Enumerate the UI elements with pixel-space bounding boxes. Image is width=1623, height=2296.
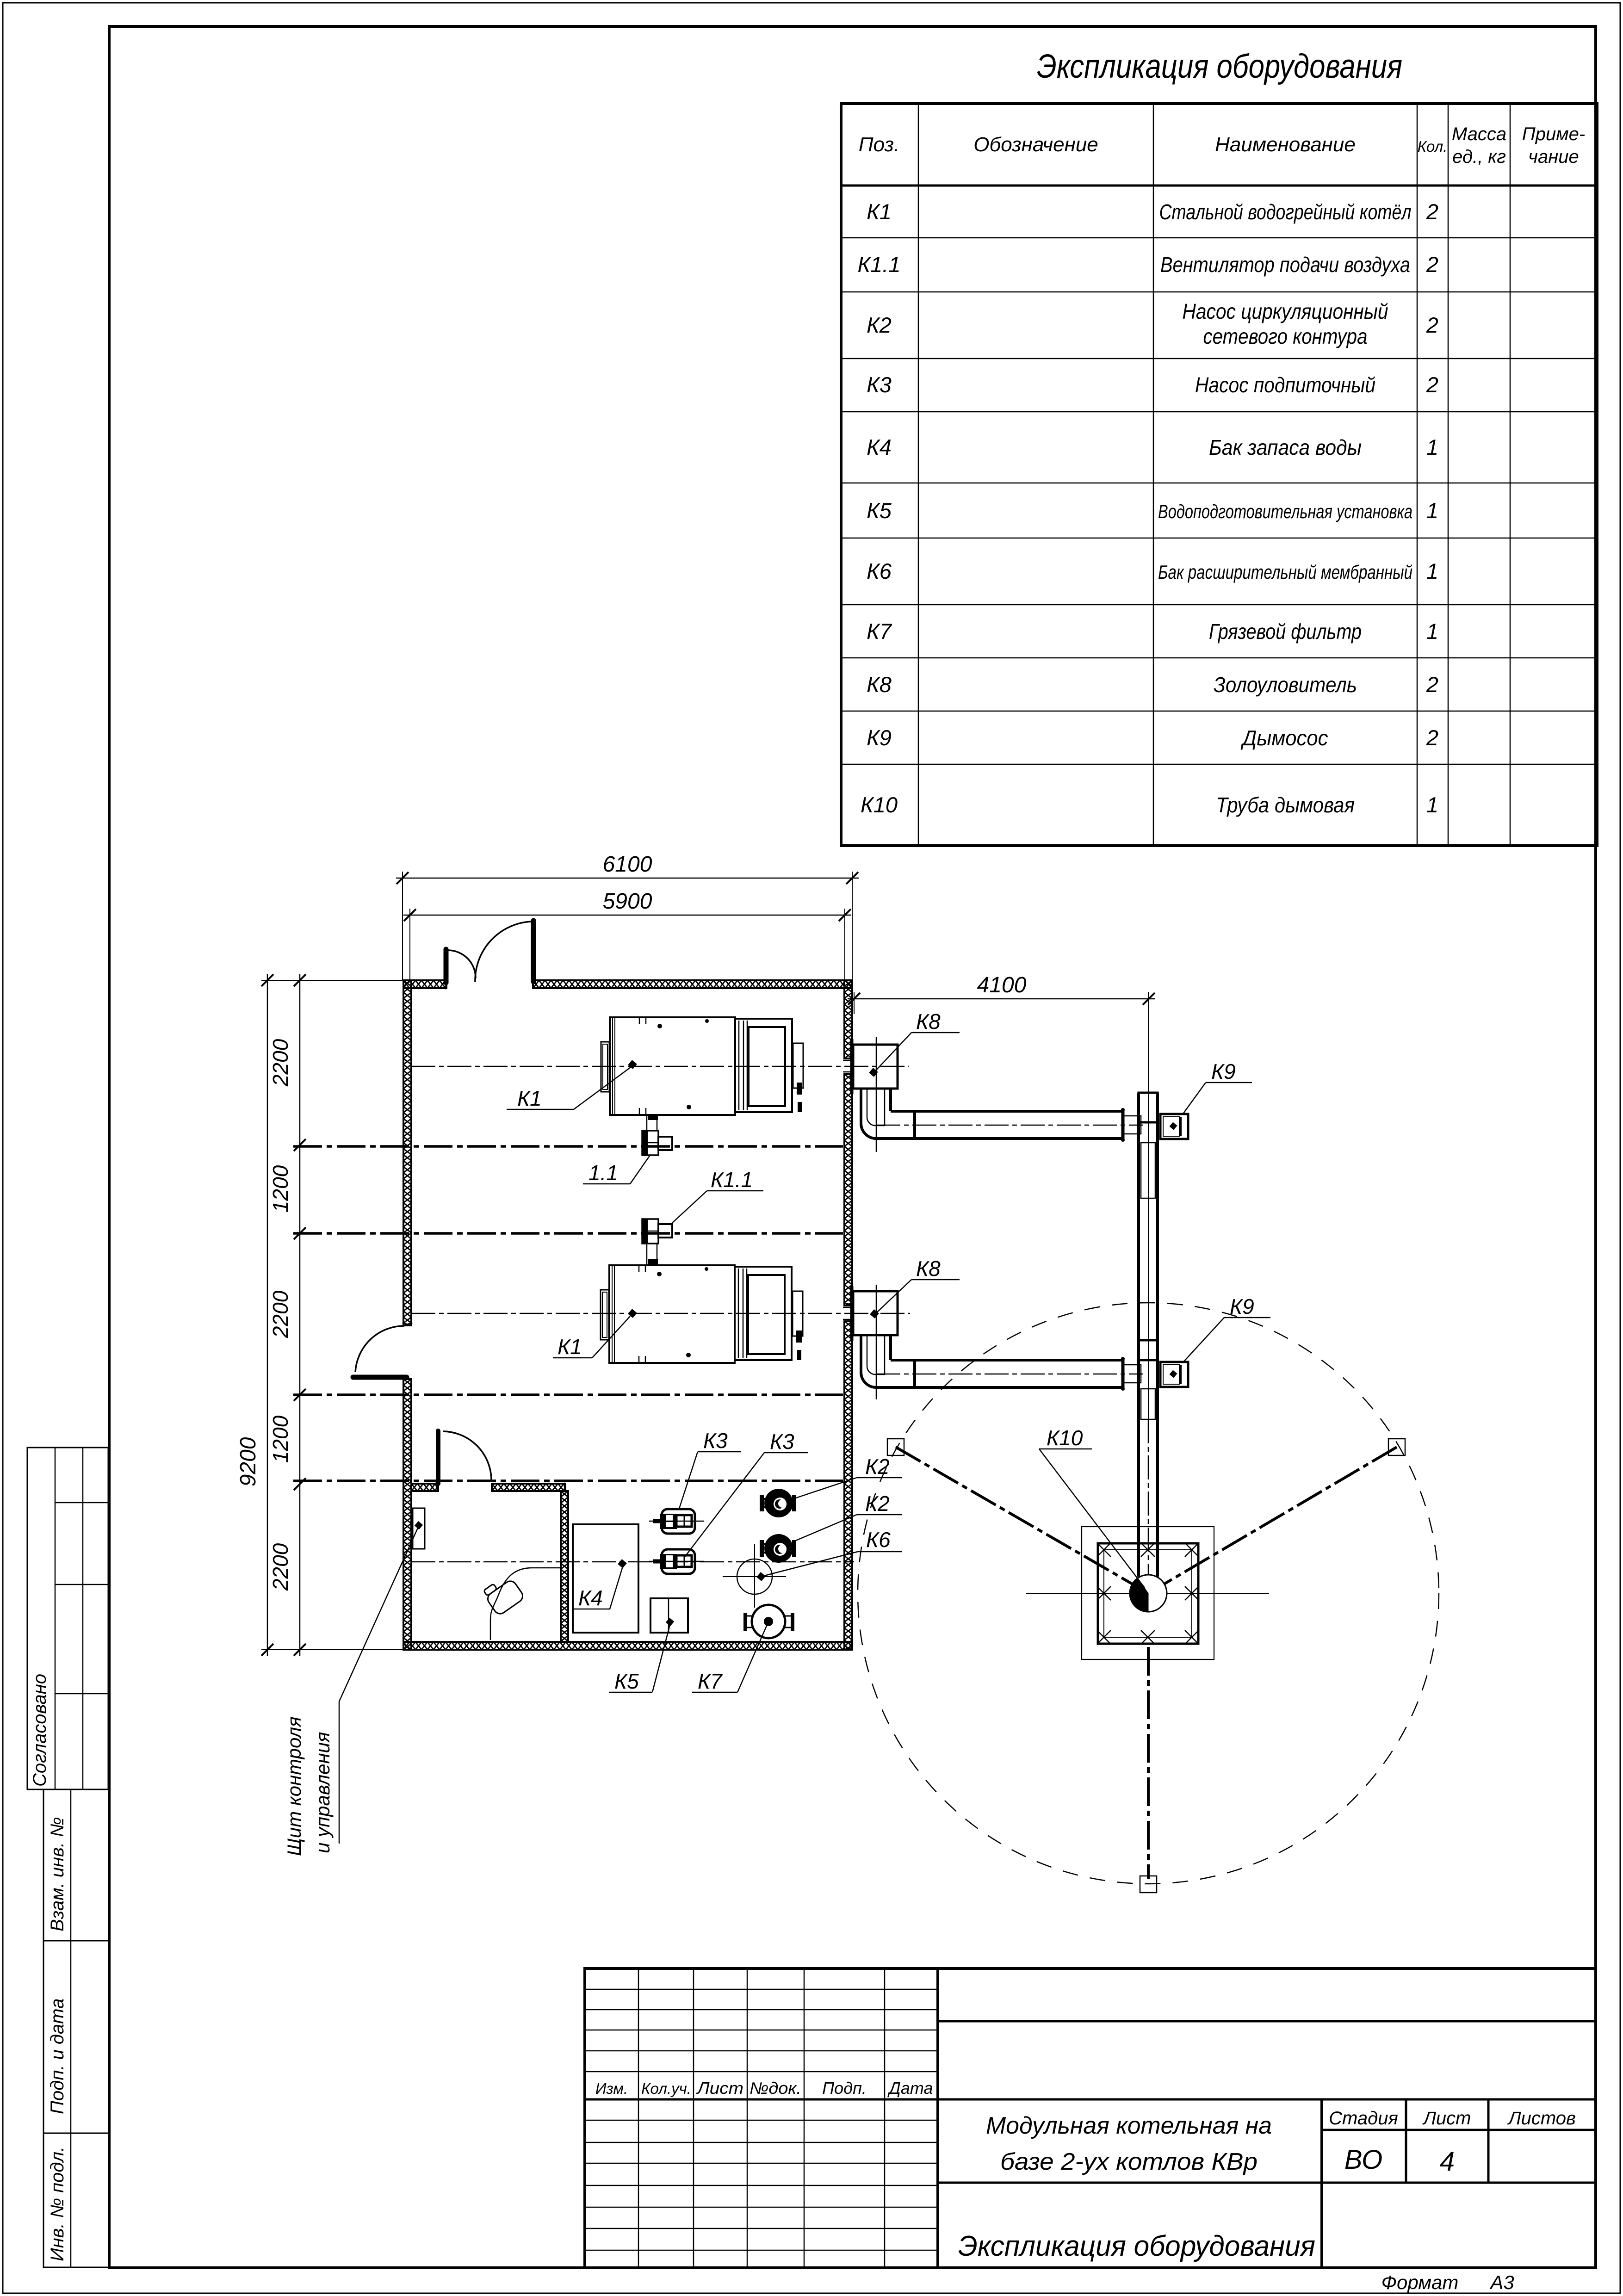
svg-text:2: 2 xyxy=(1426,252,1438,277)
svg-text:К9: К9 xyxy=(1230,1294,1254,1318)
svg-text:6100: 6100 xyxy=(603,852,652,877)
svg-text:К5: К5 xyxy=(614,1669,639,1693)
svg-text:К2: К2 xyxy=(865,1491,890,1516)
svg-text:Инв. № подл.: Инв. № подл. xyxy=(47,2147,68,2261)
svg-text:Взам. инв. №: Взам. инв. № xyxy=(47,1817,68,1931)
svg-text:ед., кг: ед., кг xyxy=(1452,147,1506,167)
svg-text:Формат: Формат xyxy=(1381,2271,1459,2293)
svg-text:К2: К2 xyxy=(867,313,892,337)
svg-text:К5: К5 xyxy=(867,498,892,523)
svg-text:Бак расширительный мембранный: Бак расширительный мембранный xyxy=(1158,561,1412,583)
svg-text:1: 1 xyxy=(1426,559,1438,583)
svg-text:К2: К2 xyxy=(865,1454,890,1479)
svg-text:2: 2 xyxy=(1426,313,1438,337)
svg-text:К1.1: К1.1 xyxy=(857,252,900,277)
svg-text:Лист: Лист xyxy=(1422,2108,1471,2129)
svg-text:Наименование: Наименование xyxy=(1215,133,1356,156)
svg-text:К1: К1 xyxy=(867,199,892,224)
svg-text:Лист: Лист xyxy=(696,2079,743,2098)
svg-text:К3: К3 xyxy=(867,372,892,397)
svg-text:4: 4 xyxy=(1440,2147,1455,2177)
svg-text:К1.1: К1.1 xyxy=(711,1168,753,1192)
svg-text:Вентилятор подачи воздуха: Вентилятор подачи воздуха xyxy=(1160,253,1410,277)
svg-text:2200: 2200 xyxy=(268,1039,292,1087)
svg-text:Масса: Масса xyxy=(1452,124,1506,144)
svg-text:Щит контроля: Щит контроля xyxy=(283,1716,305,1856)
svg-text:К10: К10 xyxy=(861,792,898,817)
svg-text:5900: 5900 xyxy=(603,889,652,914)
svg-text:Согласовано: Согласовано xyxy=(30,1674,50,1787)
svg-text:Приме-: Приме- xyxy=(1522,124,1585,144)
svg-text:К8: К8 xyxy=(867,672,892,697)
svg-text:Кол.уч.: Кол.уч. xyxy=(641,2080,691,2097)
svg-text:Грязевой фильтр: Грязевой фильтр xyxy=(1209,619,1362,644)
svg-text:Бак запаса воды: Бак запаса воды xyxy=(1209,435,1362,459)
svg-text:Золоуловитель: Золоуловитель xyxy=(1214,673,1357,697)
svg-text:9200: 9200 xyxy=(236,1437,260,1486)
svg-text:К7: К7 xyxy=(867,619,892,644)
svg-text:Экспликация оборудования: Экспликация оборудования xyxy=(1037,48,1402,85)
svg-text:1: 1 xyxy=(1426,792,1438,817)
svg-text:2200: 2200 xyxy=(268,1290,292,1338)
svg-text:К8: К8 xyxy=(916,1256,941,1281)
svg-text:Подп. и дата: Подп. и дата xyxy=(47,1999,68,2114)
svg-text:Дата: Дата xyxy=(887,2079,933,2098)
svg-text:К1: К1 xyxy=(517,1086,542,1110)
svg-text:А3: А3 xyxy=(1489,2271,1514,2293)
svg-text:К9: К9 xyxy=(1211,1059,1236,1083)
svg-text:1200: 1200 xyxy=(268,1165,292,1213)
svg-text:1200: 1200 xyxy=(268,1415,292,1463)
svg-text:Подп.: Подп. xyxy=(822,2079,867,2098)
svg-text:К4: К4 xyxy=(867,435,892,459)
svg-text:К4: К4 xyxy=(578,1586,603,1610)
svg-text:Изм.: Изм. xyxy=(595,2080,628,2097)
svg-text:Насос циркуляционный: Насос циркуляционный xyxy=(1183,299,1388,323)
svg-text:К10: К10 xyxy=(1047,1426,1083,1450)
svg-text:базе 2-ух котлов КВр: базе 2-ух котлов КВр xyxy=(1000,2148,1258,2175)
svg-text:К3: К3 xyxy=(703,1429,728,1453)
svg-text:Кол.: Кол. xyxy=(1418,138,1448,155)
svg-text:и управления: и управления xyxy=(312,1732,334,1853)
svg-text:Стадия: Стадия xyxy=(1329,2108,1398,2129)
svg-text:Насос подпиточный: Насос подпиточный xyxy=(1195,373,1375,397)
svg-text:Водоподготовительная установка: Водоподготовительная установка xyxy=(1158,501,1412,522)
svg-text:Дымосос: Дымосос xyxy=(1240,726,1328,750)
svg-text:2200: 2200 xyxy=(268,1543,292,1591)
svg-text:Модульная котельная на: Модульная котельная на xyxy=(986,2112,1272,2139)
svg-text:К8: К8 xyxy=(916,1009,941,1034)
svg-text:Листов: Листов xyxy=(1507,2108,1576,2129)
svg-text:К7: К7 xyxy=(698,1669,723,1693)
svg-text:4100: 4100 xyxy=(977,973,1027,997)
svg-text:сетевого контура: сетевого контура xyxy=(1203,324,1368,348)
svg-text:Экспликация оборудования: Экспликация оборудования xyxy=(958,2230,1315,2262)
svg-text:1: 1 xyxy=(1426,435,1438,459)
svg-text:1: 1 xyxy=(1426,498,1438,523)
svg-text:К9: К9 xyxy=(867,725,892,750)
svg-text:2: 2 xyxy=(1426,672,1438,697)
svg-text:Труба дымовая: Труба дымовая xyxy=(1216,793,1355,817)
svg-text:К6: К6 xyxy=(866,1528,891,1552)
svg-text:К6: К6 xyxy=(867,559,892,583)
svg-text:2: 2 xyxy=(1426,372,1438,397)
svg-text:К1: К1 xyxy=(558,1335,582,1359)
svg-text:ВО: ВО xyxy=(1344,2145,1383,2175)
svg-text:2: 2 xyxy=(1426,725,1438,750)
svg-text:1.1: 1.1 xyxy=(588,1161,618,1185)
svg-text:Поз.: Поз. xyxy=(859,133,900,156)
svg-text:Стальной водогрейный котёл: Стальной водогрейный котёл xyxy=(1159,200,1412,224)
svg-text:Обозначение: Обозначение xyxy=(973,133,1098,156)
svg-text:К3: К3 xyxy=(770,1430,794,1454)
svg-text:1: 1 xyxy=(1426,619,1438,644)
svg-text:№док.: №док. xyxy=(750,2079,801,2098)
svg-text:2: 2 xyxy=(1426,199,1438,224)
svg-text:чание: чание xyxy=(1528,147,1579,167)
